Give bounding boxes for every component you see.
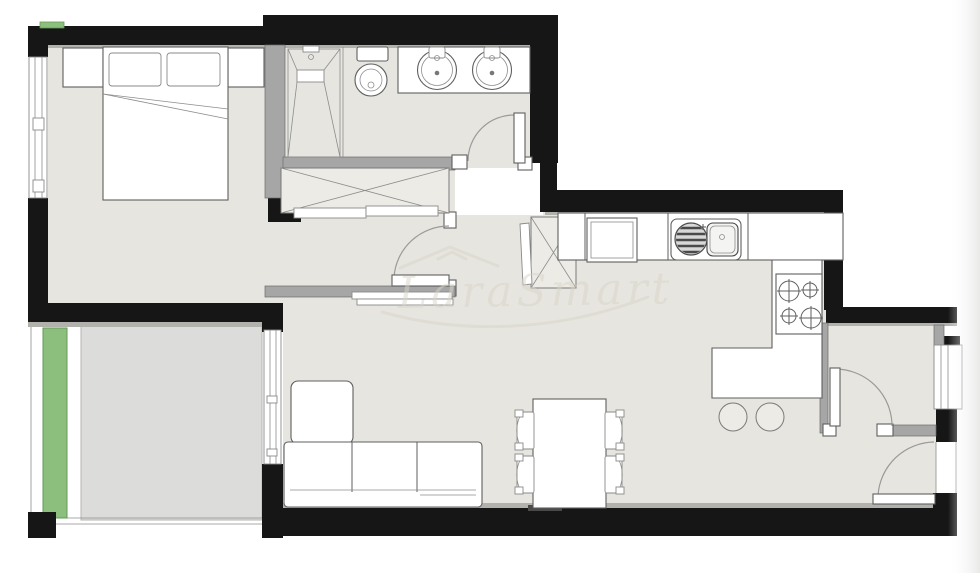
dining-chair [515,454,534,494]
wall-bedroom-bottom [28,303,283,322]
wall-top-bathroom [263,15,558,45]
partition-right-pier [934,325,944,347]
faucet-right-icon [484,47,500,58]
wall-bathroom-right [530,15,558,163]
terrace-sliding-door [264,330,281,464]
faucet-left-icon [429,47,445,58]
wardrobe-sliding-door [366,206,438,216]
pillow-left [109,53,161,86]
bar-stool-left [719,403,747,431]
built-in-wardrobe [281,168,449,218]
page-edge-shading [948,0,980,573]
double-sink-vanity [398,47,530,93]
wall-top-bedroom [28,26,265,45]
window-handle [33,180,44,192]
shower-drain [297,70,324,82]
floor-plan-canvas: LaraSmart [0,0,980,573]
double-bed [103,47,228,200]
slider-handle [267,449,277,456]
bar-stool-right [756,403,784,431]
door-frame-cap-bathroom [452,155,467,169]
terrace-corner-post [28,512,56,538]
toilet [355,47,388,96]
pillow-right [167,53,220,86]
dining-chair [605,410,624,450]
kitchen-sink-unit [671,219,741,260]
slider-handle [267,396,277,403]
fridge [587,218,637,262]
floor-plan-page: LaraSmart [0,0,980,573]
wall-living-left-upper [262,303,283,332]
dining-chair [605,454,624,494]
dining-table [533,399,606,508]
terrace-planter [43,328,67,518]
sofa-chaise [291,381,353,444]
wall-kitchen-top [545,190,843,212]
dining-chair [515,410,534,450]
terrace [28,322,262,538]
bedroom-window [29,57,47,198]
door-frame-cap-hall-right [877,424,893,436]
hob [776,274,823,334]
nightstand-left [63,48,103,87]
entrance-door-leaf [873,494,935,504]
hall-inner-door-leaf [830,368,840,426]
sofa-base [284,442,482,507]
nightstand-right [228,48,264,87]
terrace-floor [81,325,262,520]
sink-bowl [707,223,738,256]
wardrobe-sliding-door [294,208,366,218]
wall-left-corner [28,26,48,57]
window-handle [33,118,44,130]
hall-nook-floor [455,168,543,215]
watermark-text: LaraSmart [396,263,673,319]
partition-hall-horizontal [893,425,936,436]
roof-planter-marker [40,22,64,28]
bathroom-door-leaf [514,113,525,163]
wall-hall-top [826,307,957,323]
wall-bottom [262,508,957,536]
wall-hatch-bedroom-bottom [28,322,283,327]
